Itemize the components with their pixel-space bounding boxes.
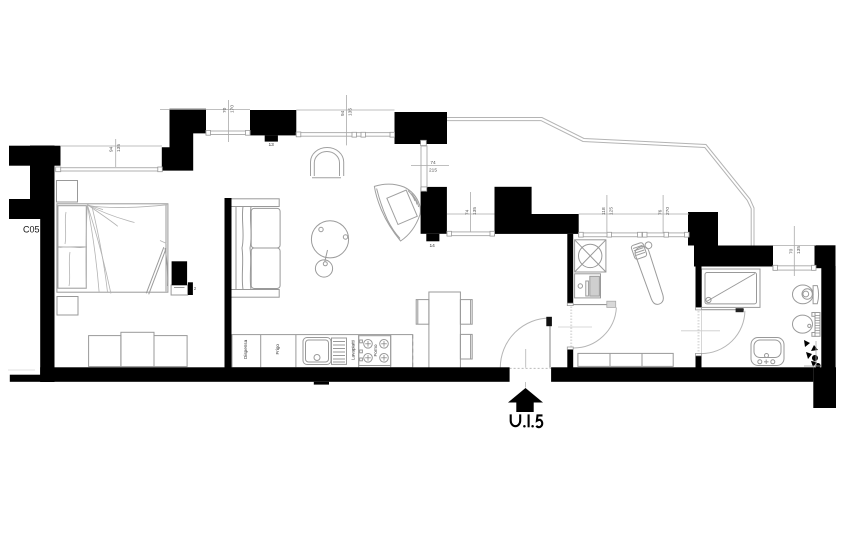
svg-text:Dispensa: Dispensa <box>243 339 248 359</box>
svg-text:76: 76 <box>658 209 664 215</box>
svg-text:135: 135 <box>116 144 122 152</box>
svg-text:94: 94 <box>340 110 346 116</box>
svg-text:125: 125 <box>609 207 615 215</box>
svg-text:74: 74 <box>430 160 436 166</box>
svg-text:Forno: Forno <box>373 344 378 356</box>
svg-text:70: 70 <box>789 248 795 254</box>
svg-text:C05: C05 <box>23 225 40 235</box>
svg-text:118: 118 <box>601 207 607 215</box>
svg-text:14: 14 <box>430 243 436 249</box>
svg-text:74: 74 <box>465 209 471 215</box>
svg-text:135: 135 <box>472 207 478 215</box>
svg-text:94: 94 <box>109 146 115 152</box>
svg-text:270: 270 <box>665 207 671 215</box>
svg-text:135: 135 <box>796 246 802 254</box>
svg-text:13: 13 <box>269 142 275 148</box>
svg-text:Frigo: Frigo <box>275 344 280 355</box>
svg-text:135: 135 <box>348 108 354 116</box>
svg-text:170: 170 <box>230 105 236 113</box>
svg-text:Lavapiatti: Lavapiatti <box>351 340 356 360</box>
svg-text:215: 215 <box>429 168 437 174</box>
svg-text:70: 70 <box>222 107 228 113</box>
